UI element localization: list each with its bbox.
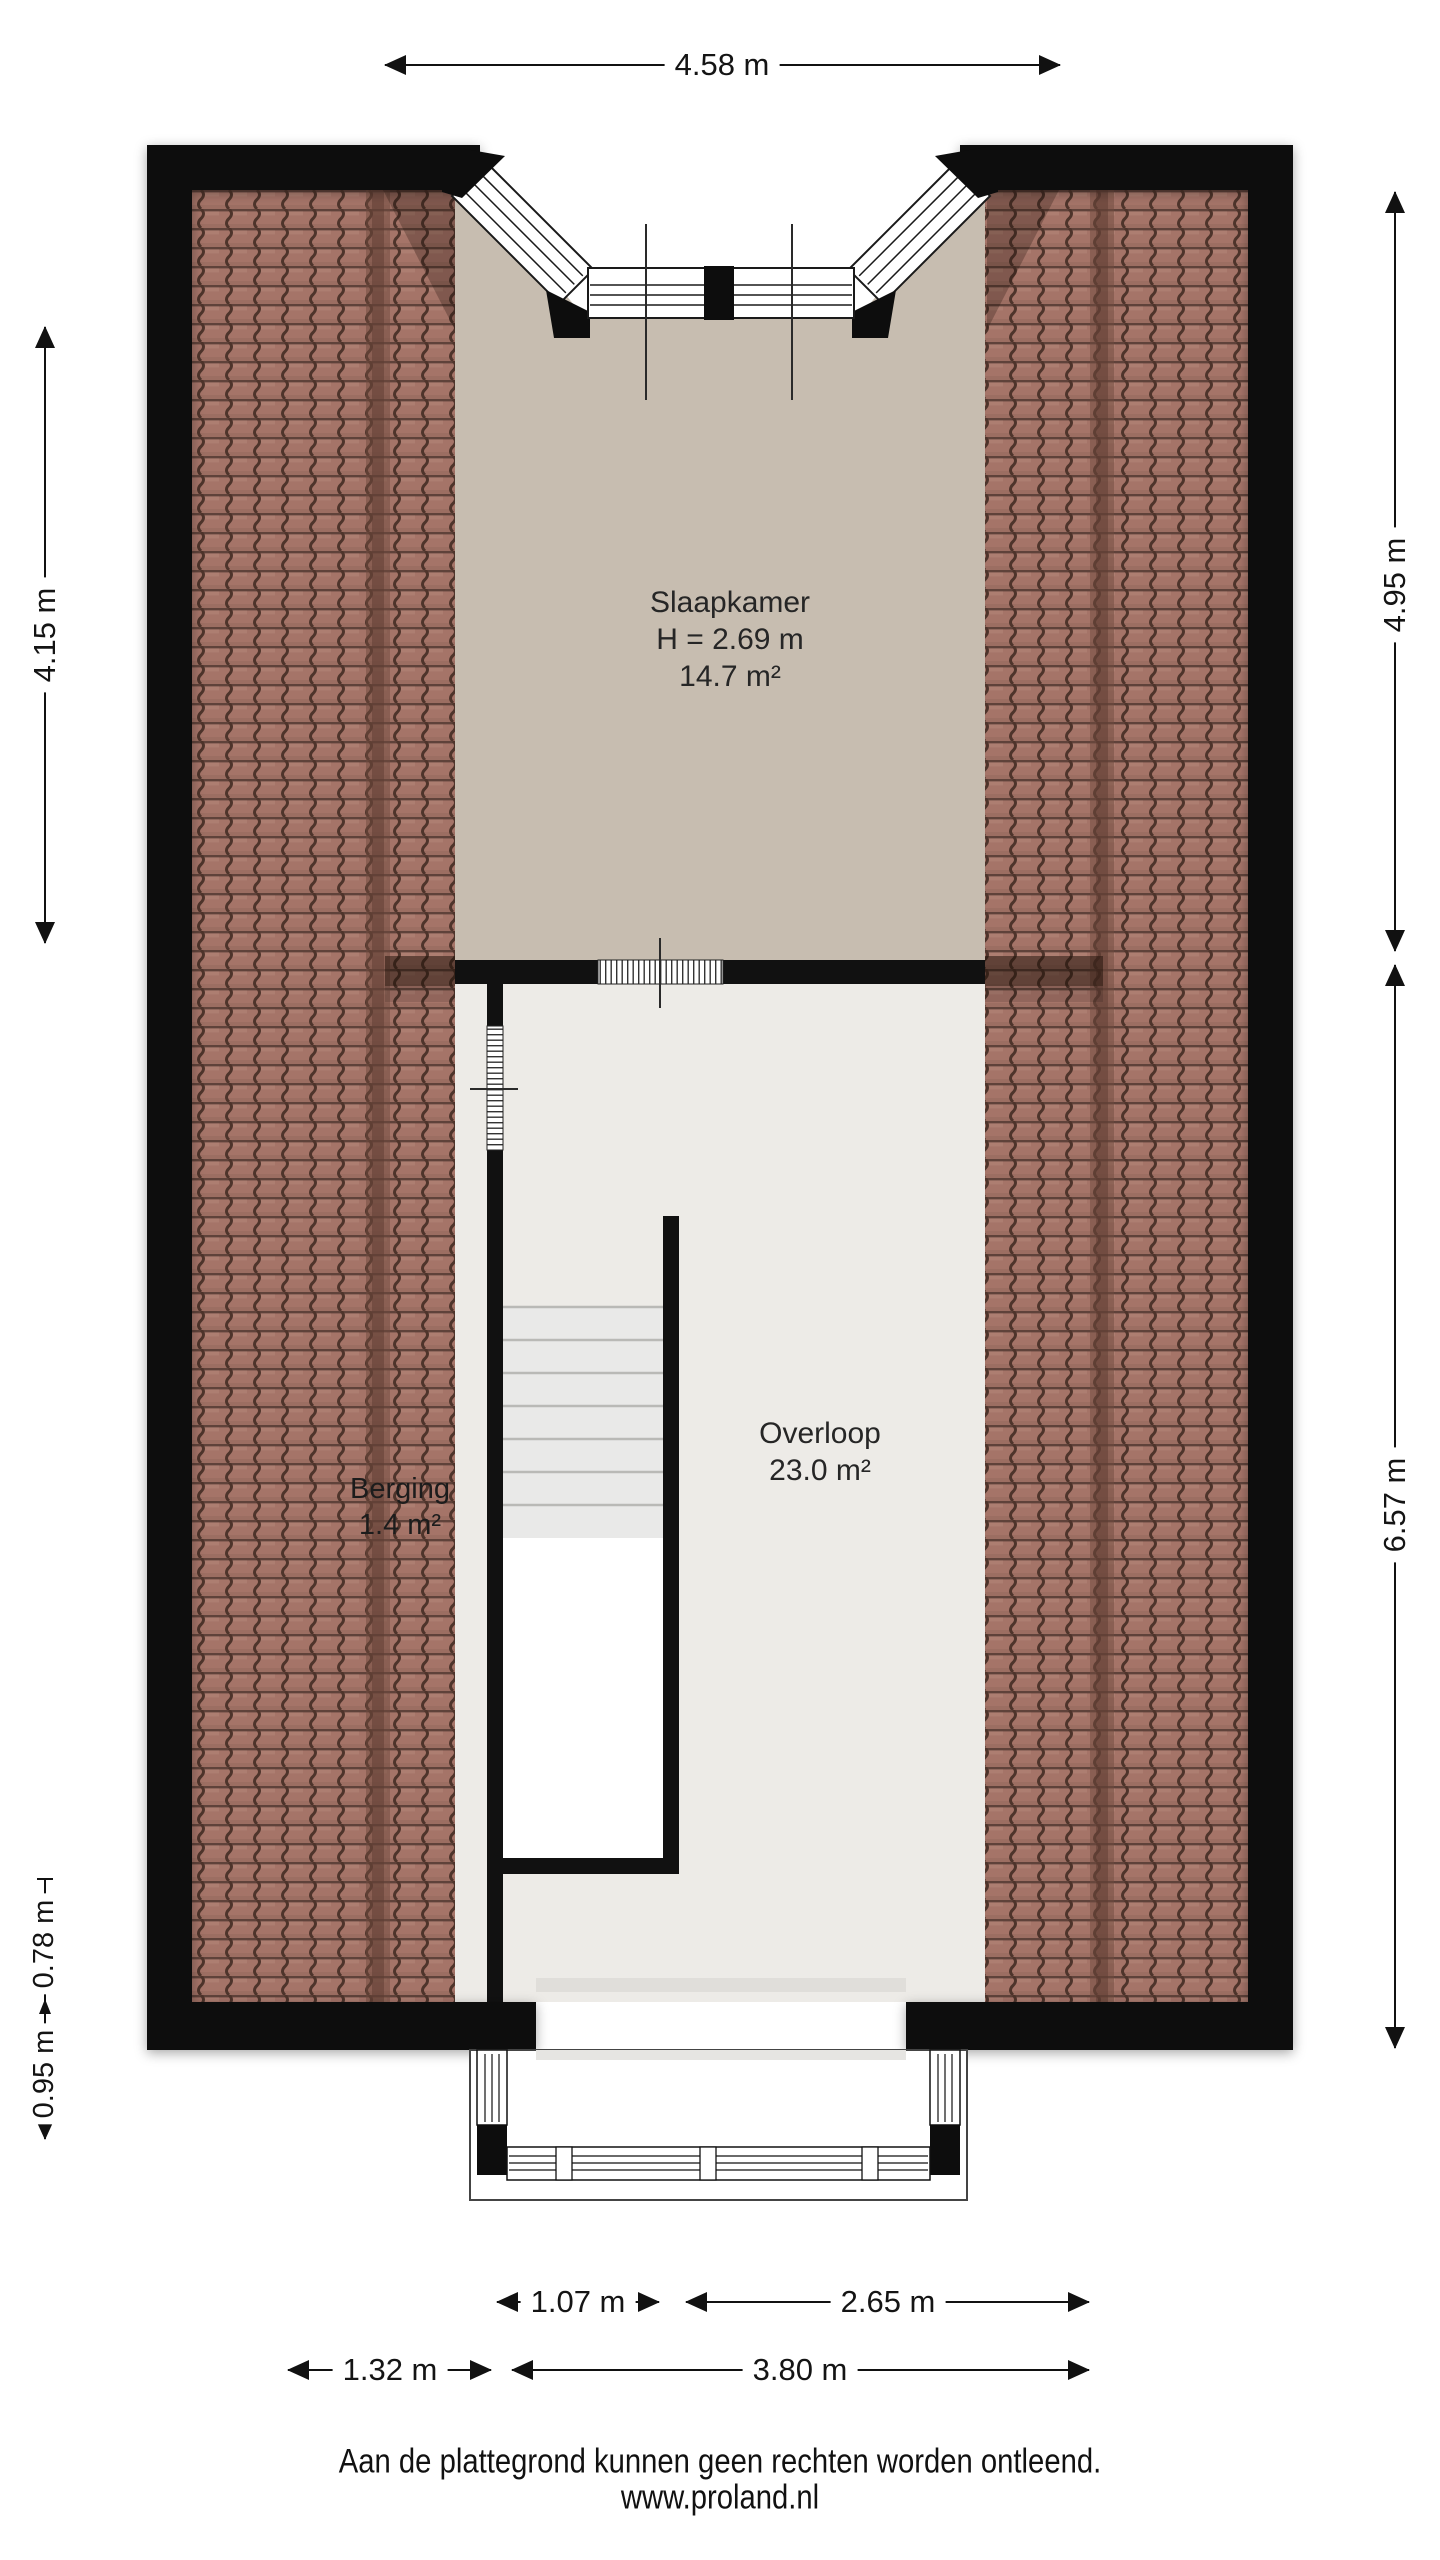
overloop-name: Overloop — [759, 1415, 881, 1452]
dim-label-left-lower-lower: 0.95 m — [29, 2024, 61, 2125]
berging-name: Berging — [350, 1472, 450, 1508]
dim-label-bottom-inner-left: 1.07 m — [521, 2285, 636, 2319]
dormer-side-window-left — [477, 2050, 507, 2175]
overloop-area: 23.0 m² — [759, 1452, 881, 1489]
footer-website: www.proland.nl — [621, 2479, 819, 2518]
stair-steps — [503, 1307, 663, 1538]
dim-label-left: 4.15 m — [28, 578, 62, 693]
dim-label-right-upper: 4.95 m — [1378, 528, 1412, 643]
slaapkamer-area: 14.7 m² — [650, 659, 810, 696]
dormer-side-window-right — [930, 2050, 960, 2175]
dim-label-bottom-outer-right: 3.80 m — [743, 2353, 858, 2387]
dim-label-left-lower-upper: 0.78 m — [29, 1894, 61, 1995]
roof-tiles-right — [985, 190, 1248, 2002]
slaapkamer-name: Slaapkamer — [650, 584, 810, 621]
roof-tiles-left — [192, 190, 455, 2002]
floor-plan-page: 4.58 m 4.15 m 4.95 m 6.57 m 0.78 m 0.95 … — [0, 0, 1440, 2560]
dormer-window — [470, 1978, 967, 2200]
floor-plan-drawing — [0, 0, 1440, 2560]
room-label-slaapkamer: Slaapkamer H = 2.69 m 14.7 m² — [650, 584, 810, 696]
berging-area: 1.4 m² — [350, 1508, 450, 1544]
bay-window-mullion — [704, 266, 734, 320]
stairwell-void — [503, 1538, 663, 1858]
dormer-front-window — [507, 2147, 930, 2180]
room-label-berging: Berging 1.4 m² — [350, 1472, 450, 1544]
dim-label-bottom-outer-left: 1.32 m — [333, 2353, 448, 2387]
footer-disclaimer: Aan de plattegrond kunnen geen rechten w… — [339, 2443, 1101, 2482]
dim-label-right-lower: 6.57 m — [1378, 1448, 1412, 1563]
room-label-overloop: Overloop 23.0 m² — [759, 1415, 881, 1489]
slaapkamer-ceiling-height: H = 2.69 m — [650, 621, 810, 658]
dim-label-top: 4.58 m — [665, 48, 780, 82]
dim-label-bottom-inner-right: 2.65 m — [831, 2285, 946, 2319]
staircase — [487, 1216, 679, 1874]
